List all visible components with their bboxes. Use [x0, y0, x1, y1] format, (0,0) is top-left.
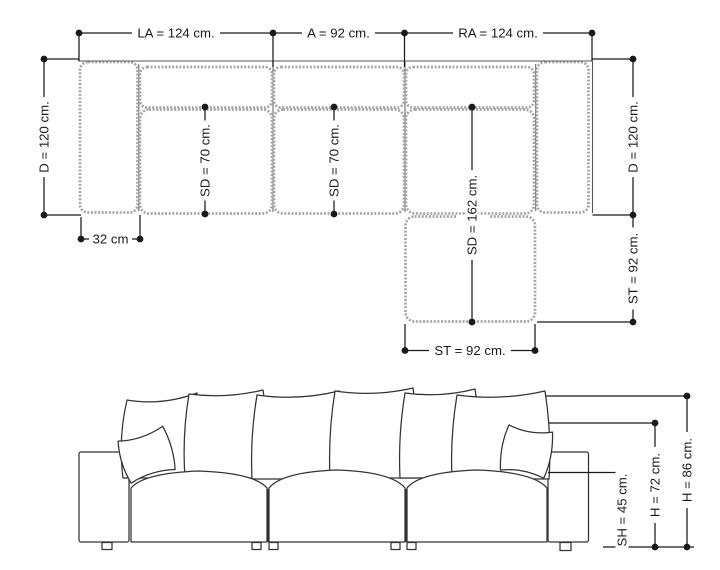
dim-label-sd-chaise: SD = 162 cm.: [465, 175, 480, 255]
dim-dot: [630, 212, 637, 219]
dim-dot: [78, 236, 85, 243]
dim-dot: [41, 56, 48, 63]
dim-dot: [76, 30, 83, 37]
dim-dot: [652, 420, 659, 427]
front-leg: [560, 543, 571, 551]
dim-label-d-left: D = 120 cm.: [37, 101, 52, 172]
dim-dot: [402, 347, 409, 354]
sofa-dimension-diagram: LA = 124 cm. A = 92 cm. RA = 124 cm. D =…: [0, 0, 720, 570]
dim-depth-left: D = 120 cm.: [37, 56, 82, 219]
front-leg: [269, 543, 278, 550]
plan-right-arm: [537, 62, 589, 213]
dim-label-la: LA = 124 cm.: [137, 26, 214, 41]
dim-label-st-bottom: ST = 92 cm.: [434, 343, 505, 358]
dim-seat-depth-2: SD = 70 cm.: [327, 104, 342, 218]
dim-label-sd2: SD = 70 cm.: [327, 124, 342, 197]
dim-chaise-width: ST = 92 cm.: [402, 324, 539, 358]
dim-dot: [137, 236, 144, 243]
dim-label-ra: RA = 124 cm.: [458, 26, 538, 41]
diagram-canvas: LA = 124 cm. A = 92 cm. RA = 124 cm. D =…: [0, 0, 720, 570]
front-leg: [391, 543, 400, 550]
dim-dot: [532, 347, 539, 354]
dim-arm-width: 32 cm: [78, 215, 144, 247]
dim-label-d-right: D = 120 cm.: [626, 101, 641, 172]
dim-label-arm: 32 cm: [93, 232, 129, 247]
dim-dot: [589, 30, 596, 37]
dim-dot: [331, 211, 338, 218]
dim-label-h-back: H = 72 cm.: [648, 453, 663, 517]
front-view: SH = 45 cm. H = 72 cm. H = 86 cm.: [79, 388, 695, 552]
dim-label-st-right: ST = 92 cm.: [626, 233, 641, 304]
front-seat-1: [131, 471, 267, 542]
dim-dot: [270, 30, 277, 37]
dim-dot: [630, 319, 637, 326]
dim-label-h-total: H = 86 cm.: [680, 438, 695, 502]
dim-dot: [630, 56, 637, 63]
dim-seat-depth-1: SD = 70 cm.: [198, 104, 213, 218]
dim-dot: [469, 319, 476, 326]
front-leg: [252, 543, 261, 550]
dim-dot: [202, 104, 209, 111]
dim-label-a: A = 92 cm.: [307, 26, 370, 41]
front-leg: [407, 543, 416, 550]
dim-dot: [684, 544, 691, 551]
plan-back-cushion-2: [274, 67, 404, 108]
plan-view: LA = 124 cm. A = 92 cm. RA = 124 cm. D =…: [37, 26, 641, 359]
dim-dot: [469, 104, 476, 111]
plan-left-arm: [80, 62, 138, 213]
dim-dot: [684, 393, 691, 400]
front-leg: [102, 543, 112, 550]
dim-dot: [41, 212, 48, 219]
dim-label-sd1: SD = 70 cm.: [198, 124, 213, 197]
front-seat-2: [269, 470, 405, 542]
dim-dot: [331, 104, 338, 111]
plan-back-cushion-1: [140, 67, 272, 108]
dim-dot: [652, 544, 659, 551]
front-seat-3: [407, 470, 547, 542]
dim-label-sh: SH = 45 cm.: [615, 474, 630, 547]
dim-dot: [202, 211, 209, 218]
front-right-arm: [548, 452, 589, 542]
plan-back-cushion-3: [406, 67, 534, 108]
dim-dot: [401, 30, 408, 37]
